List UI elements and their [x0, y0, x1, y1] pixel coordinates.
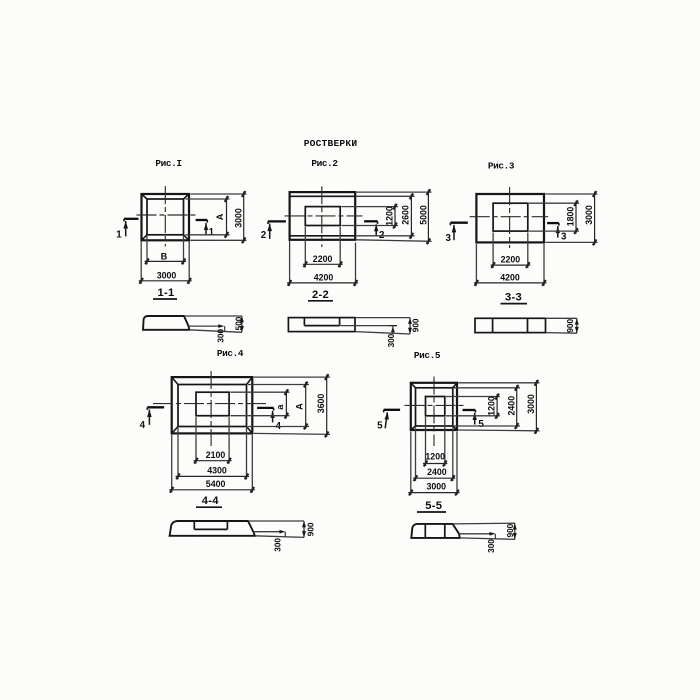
- svg-text:900: 900: [566, 319, 575, 333]
- svg-text:2600: 2600: [401, 205, 411, 225]
- svg-text:2100: 2100: [206, 450, 226, 460]
- svg-text:Рис.4: Рис.4: [217, 348, 244, 359]
- svg-text:2: 2: [261, 230, 267, 241]
- svg-text:900: 900: [411, 318, 420, 332]
- svg-text:4-4: 4-4: [202, 495, 220, 507]
- svg-text:2400: 2400: [427, 467, 447, 477]
- svg-text:5000: 5000: [418, 205, 428, 225]
- svg-text:2-2: 2-2: [312, 289, 329, 301]
- svg-text:A: A: [295, 403, 305, 410]
- svg-text:500: 500: [234, 316, 243, 330]
- svg-text:1800: 1800: [566, 207, 576, 227]
- svg-text:900: 900: [306, 522, 315, 536]
- svg-text:300: 300: [274, 538, 283, 552]
- svg-text:5-5: 5-5: [425, 500, 442, 512]
- svg-text:РОСТВЕРКИ: РОСТВЕРКИ: [304, 138, 358, 149]
- svg-text:3000: 3000: [233, 208, 243, 228]
- svg-text:3: 3: [445, 233, 451, 244]
- svg-text:5: 5: [478, 419, 484, 430]
- svg-text:B: B: [161, 251, 168, 261]
- svg-text:A: A: [215, 213, 225, 220]
- svg-text:Рис.2: Рис.2: [311, 158, 338, 169]
- svg-text:Рис.5: Рис.5: [414, 350, 441, 361]
- svg-text:1: 1: [209, 227, 215, 238]
- svg-text:2400: 2400: [506, 396, 516, 416]
- svg-text:5400: 5400: [206, 479, 226, 489]
- svg-text:300: 300: [387, 333, 396, 347]
- svg-text:2200: 2200: [313, 254, 333, 264]
- svg-text:300: 300: [487, 539, 496, 553]
- svg-text:a: a: [275, 404, 285, 410]
- svg-text:4200: 4200: [500, 272, 520, 282]
- svg-text:4: 4: [140, 420, 146, 431]
- svg-text:1: 1: [116, 230, 122, 241]
- svg-text:1200: 1200: [486, 396, 496, 416]
- svg-text:Рис.I: Рис.I: [155, 158, 181, 169]
- svg-text:4300: 4300: [207, 466, 227, 476]
- svg-text:5: 5: [377, 421, 383, 432]
- svg-text:3600: 3600: [316, 394, 326, 414]
- svg-text:2200: 2200: [501, 254, 521, 264]
- svg-text:900: 900: [506, 523, 515, 537]
- svg-text:3: 3: [561, 231, 567, 242]
- svg-text:4200: 4200: [314, 272, 334, 282]
- svg-text:3-3: 3-3: [505, 292, 522, 304]
- svg-text:1-1: 1-1: [157, 287, 174, 299]
- svg-text:3000: 3000: [157, 271, 177, 281]
- svg-text:1200: 1200: [425, 452, 445, 462]
- svg-text:3000: 3000: [427, 481, 447, 491]
- svg-text:1200: 1200: [384, 206, 394, 226]
- svg-text:Рис.3: Рис.3: [488, 161, 515, 172]
- svg-text:3000: 3000: [584, 205, 594, 225]
- svg-text:3000: 3000: [526, 394, 536, 414]
